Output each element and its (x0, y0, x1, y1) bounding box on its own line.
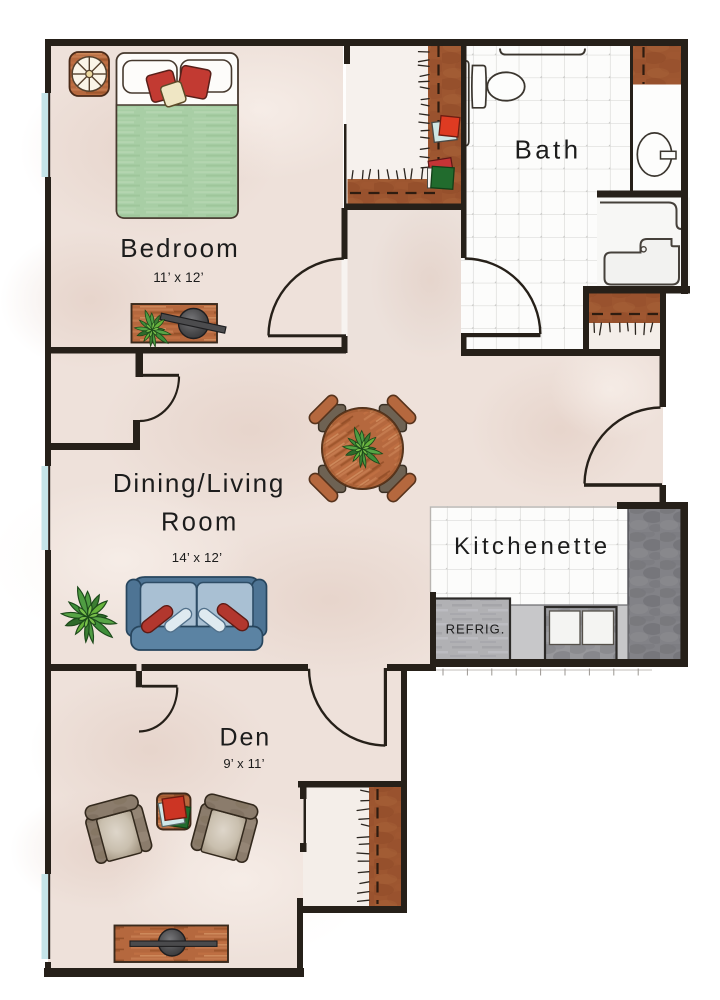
svg-text:9’ x 11’: 9’ x 11’ (223, 756, 264, 771)
svg-text:Room: Room (161, 509, 239, 537)
svg-text:Bedroom: Bedroom (120, 233, 240, 263)
svg-text:Dining/Living: Dining/Living (113, 468, 285, 498)
svg-text:REFRIG.: REFRIG. (446, 622, 506, 637)
svg-text:Kitchenette: Kitchenette (454, 533, 610, 560)
svg-text:11’ x 12’: 11’ x 12’ (153, 270, 204, 285)
svg-text:Bath: Bath (514, 135, 581, 165)
svg-text:Den: Den (220, 724, 272, 752)
svg-text:14’ x 12’: 14’ x 12’ (172, 550, 222, 565)
